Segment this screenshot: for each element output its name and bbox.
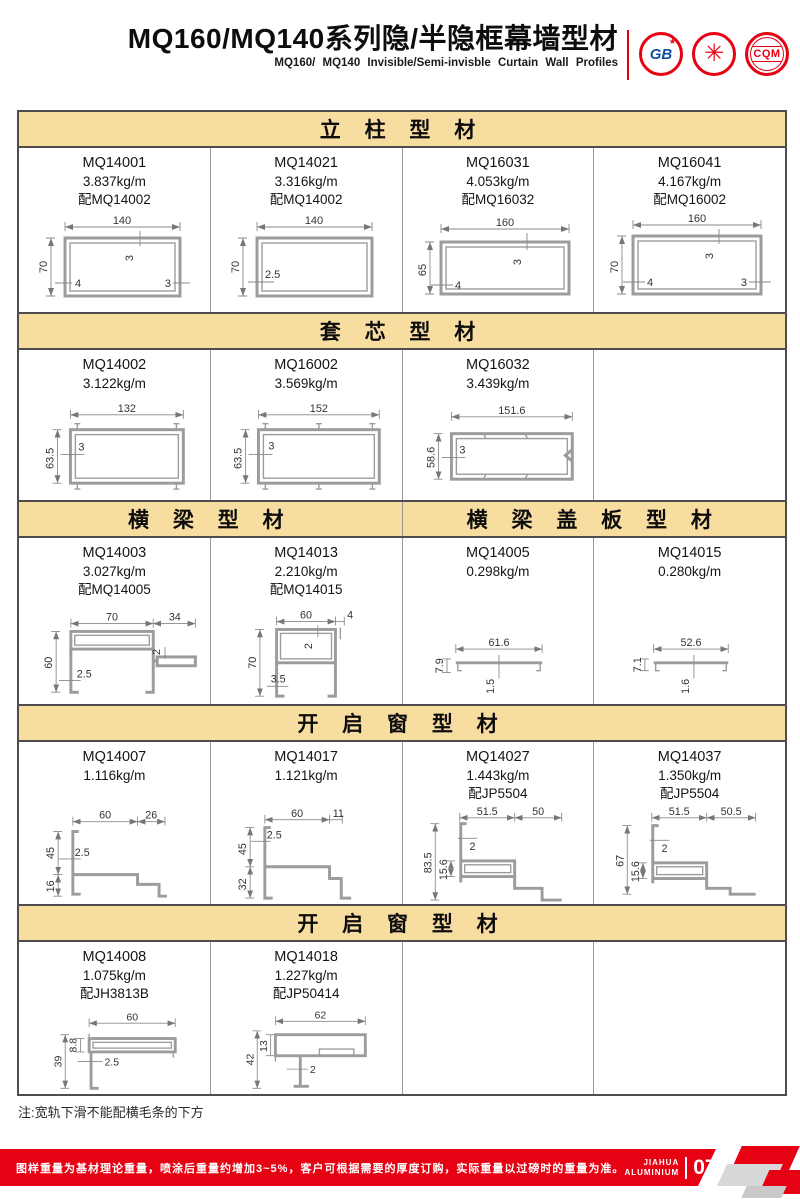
profile-rail [89, 1039, 175, 1052]
dim-label: 132 [118, 403, 136, 415]
profile-cell-mq14027: MQ14027 1.443kg/m 配JP5504 51.5 5 [402, 742, 594, 904]
profile-inner [75, 635, 150, 645]
profile-diagram-mq16041: 160 70 3 4 3 [595, 212, 784, 312]
dim-label: 2.5 [104, 1056, 119, 1068]
dim-label: 1.5 [485, 679, 497, 694]
profile-inner [465, 865, 511, 873]
profile-cell-mq14007: MQ14007 1.116kg/m 60 26 45 16 2.5 [19, 742, 210, 904]
dim-label: 13 [257, 1040, 269, 1052]
profile-code: MQ14008 [80, 948, 149, 967]
profile-diagram-mq16002: 152 63.5 3 [212, 396, 401, 500]
profile-inner [263, 435, 374, 479]
profile-diagram-mq14001: 140 70 3 4 3 [20, 212, 209, 312]
profile-weight: 2.210kg/m [270, 563, 343, 581]
profile-cell-mq14013: MQ14013 2.210kg/m 配MQ14015 60 4 7 [210, 538, 402, 704]
brand-name: JIAHUA ALUMINIUM [624, 1158, 679, 1176]
empty-cell [593, 350, 785, 500]
profile-match: 配MQ14005 [78, 581, 151, 599]
profile-diagram-mq16031: 160 65 3 4 [403, 212, 592, 312]
decor-parallelogram-gray [741, 1186, 786, 1198]
dim-ticks [622, 813, 755, 894]
profile-weight: 3.837kg/m [78, 173, 151, 191]
profile-wall [461, 824, 467, 861]
dim-label: 50.5 [721, 806, 742, 818]
profile-cell-mq14005: MQ14005 0.298kg/m 61.6 7.9 1.5 [402, 538, 594, 704]
profile-diagram-mq14008: 60 39 8.8 2.5 [20, 1006, 209, 1094]
profile-diagram-mq14021: 140 70 2.5 [212, 212, 401, 312]
profile-label: MQ14027 1.443kg/m 配JP5504 [466, 748, 530, 806]
profile-code: MQ14001 [78, 154, 151, 173]
dim-label: 2 [303, 643, 315, 649]
profile-cell-mq14018: MQ14018 1.227kg/m 配JP50414 62 42 13 [210, 942, 402, 1094]
profile-diagram-mq14013: 60 4 70 2 3.5 [212, 602, 401, 704]
profile-label: MQ16031 4.053kg/m 配MQ16032 [461, 154, 534, 212]
dim-label: 45 [45, 847, 57, 859]
profile-cell-mq14003: MQ14003 3.027kg/m 配MQ14005 70 34 [19, 538, 210, 704]
profile-inner [457, 439, 568, 475]
dim-label: 65 [417, 264, 429, 276]
dim-label: 45 [237, 843, 249, 855]
section-header-window-profiles-1: 开 启 窗 型 材 [19, 704, 785, 742]
profile-match: 配MQ14015 [270, 581, 343, 599]
dim-label: 70 [230, 261, 242, 273]
profile-label: MQ14017 1.121kg/m [274, 748, 338, 806]
dim-label: 3 [165, 278, 171, 290]
profile-match: 配JP5504 [658, 785, 722, 803]
section-body-window-profiles-1: MQ14007 1.116kg/m 60 26 45 16 2.5 [19, 742, 785, 904]
cqm-certification-logo: CQM [745, 32, 789, 76]
profile-match: 配JP50414 [273, 985, 340, 1003]
page-header: MQ160/MQ140系列隐/半隐框幕墙型材 MQ160/ MQ140 Invi… [0, 24, 800, 90]
empty-cell [402, 942, 594, 1094]
profile-weight: 1.443kg/m [466, 767, 530, 785]
profile-cell-mq16002: MQ16002 3.569kg/m 152 63.5 3 [210, 350, 402, 500]
dim-label: 60 [43, 657, 55, 669]
profile-leg [91, 1052, 99, 1088]
profile-match: 配JP5504 [466, 785, 530, 803]
profile-box [653, 863, 707, 879]
profile-weight: 1.075kg/m [80, 967, 149, 985]
profile-code: MQ14013 [270, 544, 343, 563]
section-header-core-profiles: 套 芯 型 材 [19, 312, 785, 350]
cqm-logo-text: CQM [752, 46, 781, 62]
profile-code: MQ14021 [270, 154, 343, 173]
profile-inner [75, 435, 178, 479]
profile-match: 配MQ14002 [78, 191, 151, 209]
section-header-beam-cover: 横 梁 盖 板 型 材 [402, 502, 786, 536]
dim-label: 34 [169, 612, 181, 624]
profile-outline [452, 434, 573, 480]
profile-label: MQ16002 3.569kg/m [274, 356, 338, 396]
profile-diagram-mq14017: 60 11 45 32 2.5 [212, 806, 401, 904]
profile-label: MQ14037 1.350kg/m 配JP5504 [658, 748, 722, 806]
profile-inner [638, 241, 756, 289]
dim-label: 15.6 [630, 861, 642, 882]
dim-label: 3 [124, 255, 136, 261]
dim-label: 160 [496, 217, 514, 229]
header-red-divider [627, 30, 629, 80]
profile-step [264, 867, 350, 898]
profile-code: MQ14017 [274, 748, 338, 767]
dim-label: 16 [45, 880, 57, 892]
profile-weight: 3.569kg/m [274, 375, 338, 393]
profile-label: MQ14013 2.210kg/m 配MQ14015 [270, 544, 343, 602]
profile-cell-mq16031: MQ16031 4.053kg/m 配MQ16032 160 65 3 4 [402, 148, 594, 312]
profile-label: MQ14001 3.837kg/m 配MQ14002 [78, 154, 151, 212]
dim-label: 70 [247, 657, 259, 669]
dim-label: 67 [614, 855, 626, 867]
dim-label: 42 [244, 1054, 256, 1066]
footer-band: 图样重量为基材理论重量，喷涂后重量约增加3~5%，客户可根据需要的厚度订购，实际… [0, 1149, 716, 1186]
profile-label: MQ16041 4.167kg/m 配MQ16002 [653, 154, 726, 212]
profile-label: MQ14021 3.316kg/m 配MQ14002 [270, 154, 343, 212]
profile-code: MQ14018 [273, 948, 340, 967]
dim-ticks [51, 619, 195, 693]
dim-label: 70 [106, 612, 118, 624]
profile-weight: 1.350kg/m [658, 767, 722, 785]
profile-cell-mq14015: MQ14015 0.280kg/m 52.6 7.1 1.6 [593, 538, 785, 704]
dim-label: 151.6 [499, 405, 526, 417]
dim-label: 7.9 [434, 658, 446, 673]
dim-label: 3 [78, 441, 84, 453]
footer-disclaimer: 图样重量为基材理论重量，喷涂后重量约增加3~5%，客户可根据需要的厚度订购，实际… [16, 1160, 624, 1176]
profile-weight: 4.053kg/m [461, 173, 534, 191]
profile-fins [484, 434, 529, 480]
profile-cell-mq14021: MQ14021 3.316kg/m 配MQ14002 140 70 2.5 [210, 148, 402, 312]
dim-label: 70 [38, 261, 50, 273]
dim-label: 3 [704, 253, 716, 259]
dim-label: 3 [512, 259, 524, 265]
profile-cell-mq14001: MQ14001 3.837kg/m 配MQ14002 140 70 3 4 3 [19, 148, 210, 312]
page-number: 07 [693, 1156, 716, 1180]
profile-cell-mq14037: MQ14037 1.350kg/m 配JP5504 51.5 5 [593, 742, 785, 904]
dim-label: 60 [300, 610, 312, 622]
dim-label: 61.6 [489, 637, 510, 649]
section-header-column-profiles: 立 柱 型 材 [19, 112, 785, 148]
profile-code: MQ14015 [658, 544, 722, 563]
profile-fins [262, 424, 375, 489]
profile-wall [73, 831, 81, 894]
profile-code: MQ14005 [466, 544, 530, 563]
profile-code: MQ14037 [658, 748, 722, 767]
dim-label: 60 [126, 1011, 138, 1023]
profile-diagram-mq14007: 60 26 45 16 2.5 [20, 806, 209, 904]
dim-label: 63.5 [44, 448, 56, 469]
quality-seal-logo: ✳ [692, 32, 736, 76]
dim-label: 2.5 [265, 269, 280, 281]
star-icon: ★ [669, 37, 676, 46]
header-title-block: MQ160/MQ140系列隐/半隐框幕墙型材 MQ160/ MQ140 Invi… [128, 24, 618, 69]
profile-code: MQ16031 [461, 154, 534, 173]
profile-weight: 4.167kg/m [653, 173, 726, 191]
profile-code: MQ16041 [653, 154, 726, 173]
dim-label: 63.5 [232, 448, 244, 469]
profile-cell-mq14002: MQ14002 3.122kg/m 132 63.5 3 [19, 350, 210, 500]
brand-line-top: JIAHUA [624, 1158, 679, 1167]
profile-arm [157, 657, 195, 666]
profile-inner [262, 243, 367, 291]
profile-diagram-mq14002: 132 63.5 3 [20, 396, 209, 500]
profile-inner [657, 867, 703, 875]
dim-label: 140 [304, 215, 322, 227]
dim-ticks [52, 410, 183, 483]
profile-outline [71, 631, 153, 649]
profile-label: MQ14003 3.027kg/m 配MQ14005 [78, 544, 151, 602]
profile-diagram-mq14003: 70 34 60 2.5 2 [20, 602, 209, 704]
profile-weight: 1.227kg/m [273, 967, 340, 985]
profile-step [461, 877, 562, 901]
dim-label: 8.8 [68, 1038, 80, 1053]
dim-label: 58.6 [426, 447, 438, 468]
profile-label: MQ14018 1.227kg/m 配JP50414 [273, 948, 340, 1006]
footnote: 注:宽轨下滑不能配横毛条的下方 [18, 1102, 204, 1121]
dim-label: 3 [268, 440, 274, 452]
dim-label: 2.5 [75, 847, 90, 859]
dim-label: 2 [662, 843, 668, 855]
profile-box [461, 861, 515, 877]
dim-label: 140 [113, 215, 131, 227]
profile-cell-mq16032: MQ16032 3.439kg/m 151.6 58.6 3 [402, 350, 594, 500]
dim-label: 50 [533, 806, 545, 818]
page-subtitle: MQ160/ MQ140 Invisible/Semi-invisble Cur… [128, 57, 618, 69]
dim-label: 51.5 [669, 806, 690, 818]
seal-emblem-icon: ✳ [704, 42, 724, 66]
profile-weight: 3.316kg/m [270, 173, 343, 191]
profile-weight: 1.121kg/m [274, 767, 338, 785]
profile-match: 配JH3813B [80, 985, 149, 1003]
dim-label: 2 [309, 1064, 315, 1076]
section-body-window-profiles-2: MQ14008 1.075kg/m 配JH3813B 60 39 [19, 942, 785, 1094]
catalog-page: MQ160/MQ140系列隐/半隐框幕墙型材 MQ160/ MQ140 Invi… [0, 0, 800, 1200]
profile-wall [653, 826, 659, 863]
brand-divider [685, 1157, 687, 1179]
section-body-column-profiles: MQ14001 3.837kg/m 配MQ14002 140 70 3 4 3 [19, 148, 785, 312]
dim-label: 1.6 [680, 679, 692, 694]
dim-label: 4 [647, 277, 653, 289]
footer-brand: JIAHUA ALUMINIUM 07 [624, 1156, 716, 1180]
profile-match: 配MQ16002 [653, 191, 726, 209]
dim-label: 2 [151, 649, 163, 655]
profile-leg [293, 1056, 308, 1087]
profile-fins [74, 424, 179, 489]
profile-code: MQ14027 [466, 748, 530, 767]
dim-label: 3 [741, 277, 747, 289]
dim-label: 60 [99, 810, 111, 822]
dim-label: 32 [237, 878, 249, 890]
dim-label: 11 [332, 808, 343, 820]
profile-label: MQ14008 1.075kg/m 配JH3813B [80, 948, 149, 1006]
profile-code: MQ14003 [78, 544, 151, 563]
profile-label: MQ14007 1.116kg/m [83, 748, 147, 806]
profile-step [73, 875, 167, 897]
profile-outline [257, 238, 372, 296]
profile-outline [70, 430, 183, 483]
dim-label: 15.6 [438, 859, 450, 880]
dim-label: 160 [688, 213, 706, 225]
profile-code: MQ14007 [83, 748, 147, 767]
dim-ticks [434, 412, 573, 479]
profile-cell-mq16041: MQ16041 4.167kg/m 配MQ16002 160 70 3 4 3 [593, 148, 785, 312]
section-header-beam-profiles: 横 梁 型 材 横 梁 盖 板 型 材 [19, 500, 785, 538]
profile-hooks [656, 664, 727, 671]
profile-weight: 3.027kg/m [78, 563, 151, 581]
profile-weight: 0.280kg/m [658, 563, 722, 581]
empty-cell [593, 942, 785, 1094]
profile-inner [446, 247, 564, 289]
section-header-beam: 横 梁 型 材 [19, 502, 402, 536]
profile-weight: 3.122kg/m [83, 375, 147, 393]
profile-outline [65, 238, 180, 296]
dim-label: 70 [609, 261, 621, 273]
section-header-window-profiles-2: 开 启 窗 型 材 [19, 904, 785, 942]
dim-label: 52.6 [681, 637, 702, 649]
profile-label: MQ14002 3.122kg/m [83, 356, 147, 396]
dim-label: 4 [75, 278, 81, 290]
profile-match: 配MQ14002 [270, 191, 343, 209]
profile-rail [275, 1035, 365, 1056]
profile-cell-mq14008: MQ14008 1.075kg/m 配JH3813B 60 39 [19, 942, 210, 1094]
profile-label: MQ14005 0.298kg/m [466, 544, 530, 602]
section-body-beam-profiles: MQ14003 3.027kg/m 配MQ14005 70 34 [19, 538, 785, 704]
profile-inner [93, 1042, 171, 1048]
dim-label: 26 [145, 810, 157, 822]
dim-label: 4 [455, 280, 461, 292]
profile-code: MQ16032 [466, 356, 530, 375]
profile-diagram-mq14015: 52.6 7.1 1.6 [595, 602, 784, 704]
dim-ticks [240, 410, 379, 483]
profile-diagram-mq14027: 51.5 50 83.5 15.6 2 [403, 806, 592, 904]
gb-logo-text: GB [650, 46, 673, 63]
profile-weight: 0.298kg/m [466, 563, 530, 581]
dim-label: 51.5 [477, 806, 498, 818]
profile-inner [70, 243, 175, 291]
profile-outline [258, 430, 379, 483]
dim-label: 60 [291, 808, 303, 820]
dim-label: 4 [347, 610, 353, 622]
dim-label: 152 [309, 403, 327, 415]
leader-lines [59, 647, 165, 680]
dim-label: 2.5 [77, 669, 92, 681]
gb-certification-logo: GB ★ [639, 32, 683, 76]
dim-label: 3.5 [270, 673, 285, 685]
profile-step [653, 879, 756, 895]
brand-line-bottom: ALUMINIUM [624, 1168, 679, 1177]
profile-cell-mq14017: MQ14017 1.121kg/m 60 11 45 32 2.5 [210, 742, 402, 904]
page-title: MQ160/MQ140系列隐/半隐框幕墙型材 [128, 24, 618, 55]
dim-label: 3 [460, 444, 466, 456]
profile-diagram-mq14037: 51.5 50.5 67 15.6 2 [595, 806, 784, 904]
dim-label: 2 [470, 841, 476, 853]
profile-code: MQ16002 [274, 356, 338, 375]
dim-label: 39 [52, 1055, 64, 1067]
profile-weight: 3.439kg/m [466, 375, 530, 393]
profile-diagram-mq16032: 151.6 58.6 3 [403, 396, 592, 500]
profile-diagram-mq14018: 62 42 13 2 [212, 1006, 401, 1094]
profile-label: MQ14015 0.280kg/m [658, 544, 722, 602]
certification-logos: GB ★ ✳ CQM [639, 32, 789, 76]
dim-label: 62 [314, 1009, 326, 1021]
profile-diagram-mq14005: 61.6 7.9 1.5 [403, 602, 592, 704]
profile-label: MQ16032 3.439kg/m [466, 356, 530, 396]
dim-label: 2.5 [266, 829, 281, 841]
profile-match: 配MQ16032 [461, 191, 534, 209]
profile-weight: 1.116kg/m [83, 767, 147, 785]
section-body-core-profiles: MQ14002 3.122kg/m 132 63.5 3 [19, 350, 785, 500]
profiles-table: 立 柱 型 材 MQ14001 3.837kg/m 配MQ14002 140 7… [17, 110, 787, 1096]
dim-label: 83.5 [423, 852, 435, 873]
profile-code: MQ14002 [83, 356, 147, 375]
dim-ticks [245, 815, 342, 898]
dim-label: 7.1 [632, 657, 644, 672]
